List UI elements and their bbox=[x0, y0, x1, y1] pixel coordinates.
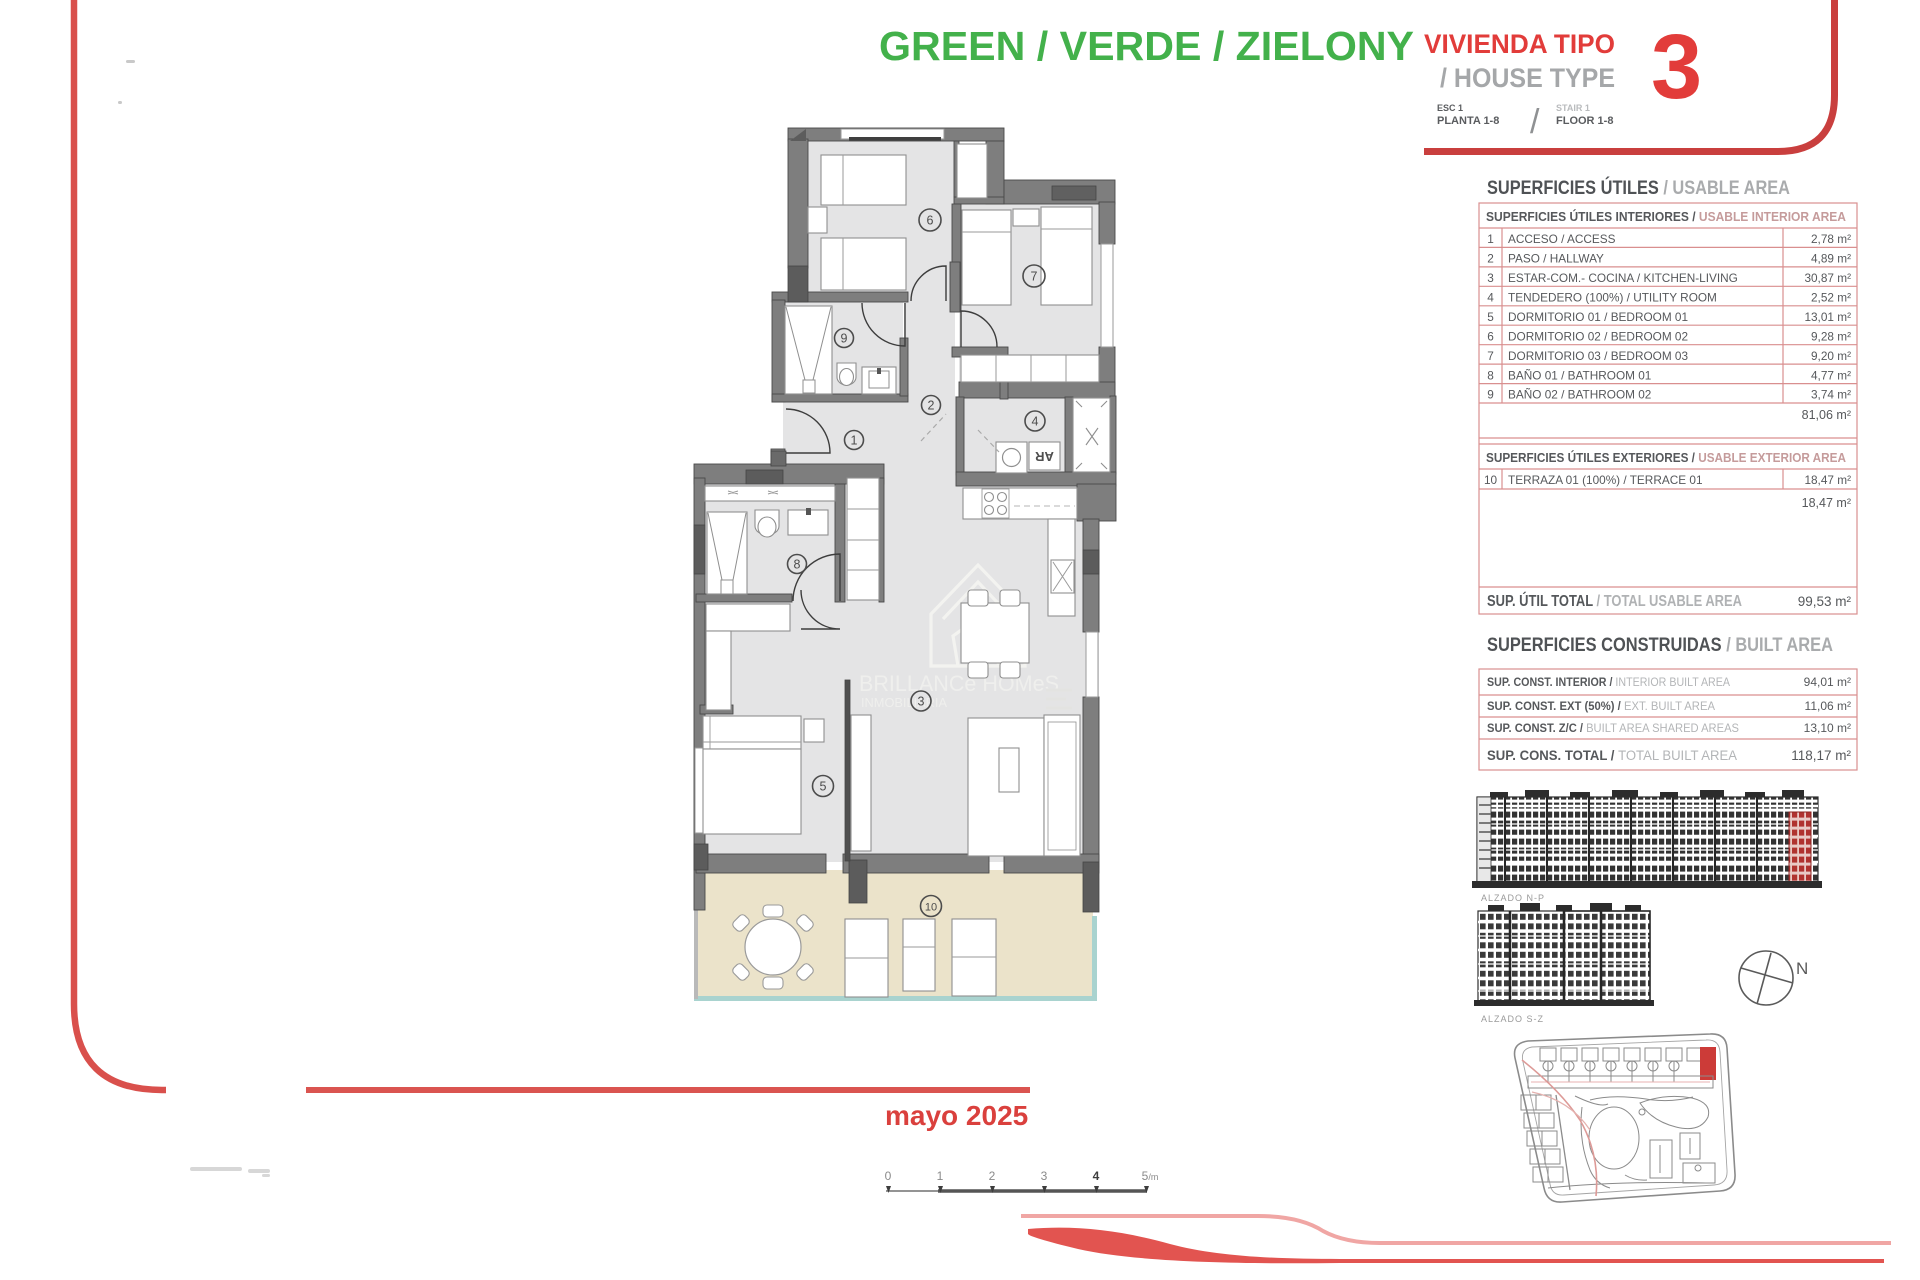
svg-text:ESTAR-COM.- COCINA / KITCHEN-L: ESTAR-COM.- COCINA / KITCHEN-LIVING bbox=[1508, 271, 1738, 285]
svg-text:8: 8 bbox=[794, 558, 801, 572]
svg-text:INMOBILIARIA: INMOBILIARIA bbox=[861, 696, 948, 710]
svg-text:5: 5 bbox=[820, 780, 827, 794]
svg-text:TERRAZA 01 (100%) / TERRACE 01: TERRAZA 01 (100%) / TERRACE 01 bbox=[1508, 473, 1703, 487]
svg-text:ALZADO S-Z: ALZADO S-Z bbox=[1481, 1014, 1544, 1024]
svg-text:3,74 m²: 3,74 m² bbox=[1811, 388, 1851, 402]
svg-text:13,10 m²: 13,10 m² bbox=[1804, 721, 1851, 735]
svg-text:SUP. CONST. EXT (50%) / EXT. B: SUP. CONST. EXT (50%) / EXT. BUILT AREA bbox=[1487, 699, 1715, 713]
svg-text:ALZADO N-P: ALZADO N-P bbox=[1481, 893, 1545, 903]
svg-text:SUPERFICIES ÚTILES EXTERIORES: SUPERFICIES ÚTILES EXTERIORES / USABLE E… bbox=[1486, 450, 1846, 465]
svg-text:GREEN / VERDE / ZIELONY: GREEN / VERDE / ZIELONY bbox=[879, 23, 1414, 69]
svg-text:30,87 m²: 30,87 m² bbox=[1804, 271, 1851, 285]
svg-text:1: 1 bbox=[851, 434, 858, 448]
svg-text:3: 3 bbox=[1041, 1169, 1048, 1183]
svg-text:PLANTA 1-8: PLANTA 1-8 bbox=[1437, 115, 1499, 127]
svg-text:BRILLANCe HOMeS: BRILLANCe HOMeS bbox=[859, 671, 1059, 696]
svg-text:1: 1 bbox=[937, 1169, 944, 1183]
svg-text:SUPERFICIES ÚTILES INTERIORES: SUPERFICIES ÚTILES INTERIORES / USABLE I… bbox=[1486, 209, 1846, 224]
svg-text:SUPERFICIES ÚTILES / USABLE AR: SUPERFICIES ÚTILES / USABLE AREA bbox=[1487, 175, 1790, 199]
svg-text:2: 2 bbox=[928, 399, 935, 413]
svg-text:STAIR 1: STAIR 1 bbox=[1556, 103, 1590, 113]
svg-text:SUP. CONST. Z/C / BUILT AREA S: SUP. CONST. Z/C / BUILT AREA SHARED AREA… bbox=[1487, 721, 1739, 735]
svg-text:5: 5 bbox=[1487, 310, 1494, 324]
svg-text:99,53 m²: 99,53 m² bbox=[1798, 594, 1852, 609]
svg-text:BAÑO 02 / BATHROOM 02: BAÑO 02 / BATHROOM 02 bbox=[1508, 388, 1651, 402]
svg-text:DORMITORIO 03 / BEDROOM 03: DORMITORIO 03 / BEDROOM 03 bbox=[1508, 349, 1688, 363]
svg-text:VIVIENDA TIPO: VIVIENDA TIPO bbox=[1424, 29, 1615, 59]
svg-text:N: N bbox=[1796, 959, 1808, 978]
svg-text:10: 10 bbox=[1484, 473, 1498, 487]
svg-text:3: 3 bbox=[1487, 271, 1494, 285]
svg-text:6: 6 bbox=[1487, 329, 1494, 343]
svg-text:2: 2 bbox=[989, 1169, 996, 1183]
svg-text:18,47 m²: 18,47 m² bbox=[1804, 473, 1851, 487]
svg-text:4,77 m²: 4,77 m² bbox=[1811, 368, 1851, 382]
svg-text:FLOOR 1-8: FLOOR 1-8 bbox=[1556, 115, 1613, 127]
svg-text:BAÑO 01 / BATHROOM 01: BAÑO 01 / BATHROOM 01 bbox=[1508, 368, 1651, 382]
svg-text:4: 4 bbox=[1032, 415, 1039, 429]
svg-text:9: 9 bbox=[841, 332, 848, 346]
svg-text:1: 1 bbox=[1487, 232, 1494, 246]
svg-text:SUP. CONST. INTERIOR / INTERIO: SUP. CONST. INTERIOR / INTERIOR BUILT AR… bbox=[1487, 675, 1730, 689]
svg-text:SUP. CONS. TOTAL / TOTAL BUILT: SUP. CONS. TOTAL / TOTAL BUILT AREA bbox=[1487, 748, 1737, 763]
svg-text:5/m: 5/m bbox=[1142, 1169, 1159, 1183]
svg-text:2,78 m²: 2,78 m² bbox=[1811, 232, 1851, 246]
svg-text:/ HOUSE TYPE: / HOUSE TYPE bbox=[1440, 63, 1615, 93]
svg-text:4: 4 bbox=[1487, 291, 1494, 305]
svg-text:11,06 m²: 11,06 m² bbox=[1805, 699, 1851, 713]
svg-text:3: 3 bbox=[1651, 16, 1702, 118]
svg-text:7: 7 bbox=[1031, 270, 1038, 284]
svg-text:13,01 m²: 13,01 m² bbox=[1804, 310, 1851, 324]
svg-text:6: 6 bbox=[927, 214, 934, 228]
svg-text:9,28 m²: 9,28 m² bbox=[1811, 329, 1851, 343]
svg-text:/: / bbox=[1530, 103, 1540, 141]
svg-text:4,89 m²: 4,89 m² bbox=[1811, 252, 1851, 266]
svg-text:8: 8 bbox=[1487, 368, 1494, 382]
svg-text:118,17 m²: 118,17 m² bbox=[1791, 748, 1851, 763]
svg-text:DORMITORIO 01 / BEDROOM 01: DORMITORIO 01 / BEDROOM 01 bbox=[1508, 310, 1688, 324]
svg-text:7: 7 bbox=[1487, 349, 1494, 363]
svg-text:10: 10 bbox=[925, 902, 937, 914]
svg-text:2,52 m²: 2,52 m² bbox=[1811, 291, 1851, 305]
svg-text:94,01 m²: 94,01 m² bbox=[1804, 675, 1851, 689]
svg-text:mayo 2025: mayo 2025 bbox=[885, 1100, 1028, 1131]
svg-text:ESC 1: ESC 1 bbox=[1437, 103, 1463, 113]
svg-text:9,20 m²: 9,20 m² bbox=[1811, 349, 1851, 363]
svg-text:2: 2 bbox=[1487, 252, 1494, 266]
svg-text:3: 3 bbox=[918, 695, 925, 709]
svg-text:SUPERFICIES CONSTRUIDAS / BUIL: SUPERFICIES CONSTRUIDAS / BUILT AREA bbox=[1487, 634, 1833, 656]
svg-text:4: 4 bbox=[1093, 1169, 1100, 1183]
svg-text:TENDEDERO (100%) / UTILITY ROO: TENDEDERO (100%) / UTILITY ROOM bbox=[1508, 291, 1717, 305]
svg-text:SUP. ÚTIL TOTAL / TOTAL USABLE: SUP. ÚTIL TOTAL / TOTAL USABLE AREA bbox=[1487, 591, 1742, 610]
svg-text:PASO / HALLWAY: PASO / HALLWAY bbox=[1508, 252, 1604, 266]
svg-text:DORMITORIO 02 / BEDROOM 02: DORMITORIO 02 / BEDROOM 02 bbox=[1508, 329, 1688, 343]
svg-text:81,06 m²: 81,06 m² bbox=[1802, 408, 1851, 422]
svg-text:ACCESO / ACCESS: ACCESO / ACCESS bbox=[1508, 232, 1616, 246]
svg-text:9: 9 bbox=[1487, 388, 1494, 402]
svg-text:AR: AR bbox=[1035, 449, 1054, 464]
svg-text:0: 0 bbox=[885, 1169, 892, 1183]
svg-text:18,47 m²: 18,47 m² bbox=[1802, 496, 1851, 510]
